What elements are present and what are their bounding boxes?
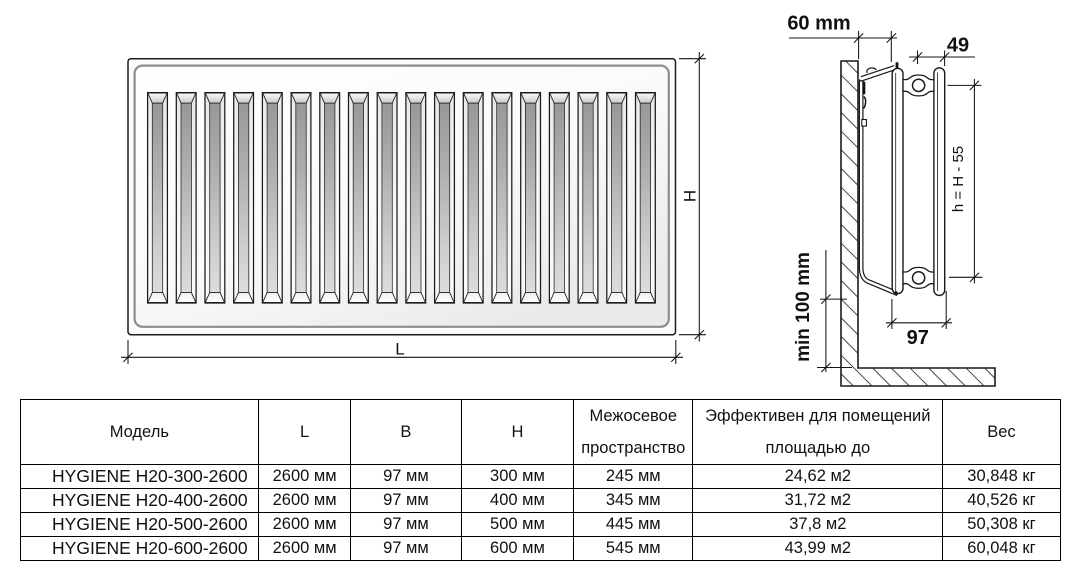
svg-text:L: L — [395, 340, 404, 359]
svg-text:60 mm: 60 mm — [787, 13, 850, 35]
svg-text:H: H — [681, 190, 700, 202]
svg-text:min 100 mm: min 100 mm — [793, 252, 814, 362]
svg-text:h = H - 55: h = H - 55 — [950, 146, 967, 212]
svg-text:49: 49 — [947, 35, 969, 57]
svg-text:97: 97 — [907, 327, 929, 349]
